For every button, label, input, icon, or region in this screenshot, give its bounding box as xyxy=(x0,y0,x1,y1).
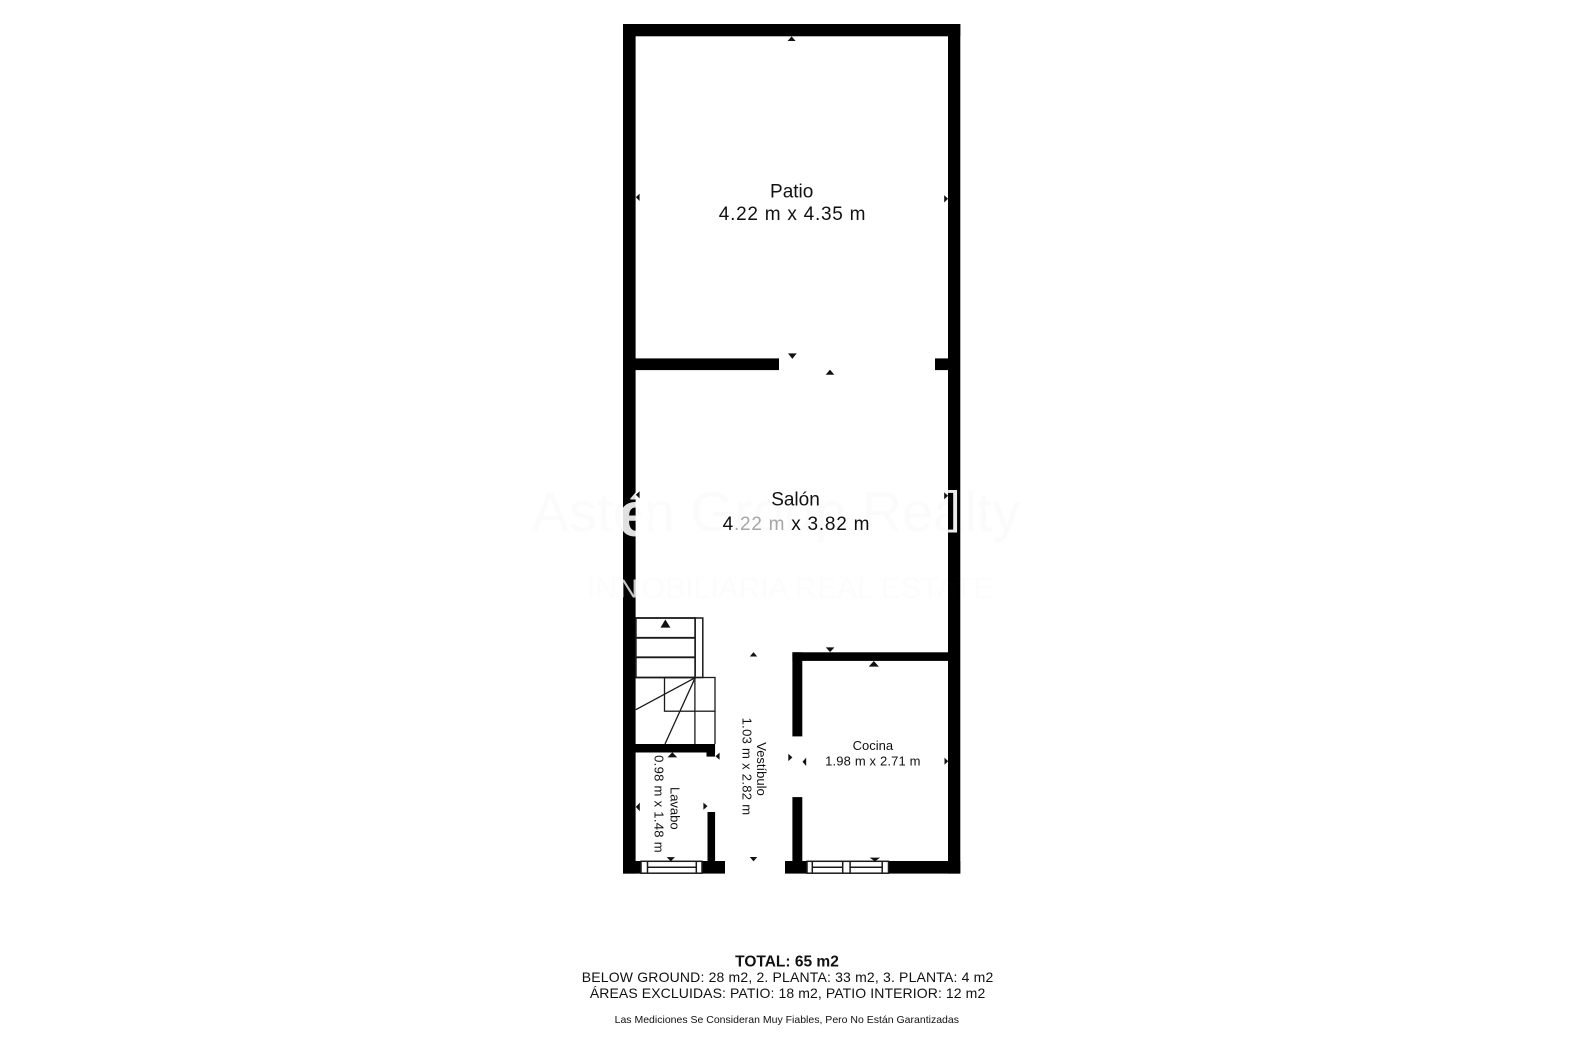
svg-text:Salón: Salón xyxy=(771,489,820,510)
svg-text:1.98 m x 2.71 m: 1.98 m x 2.71 m xyxy=(825,754,920,769)
svg-text:é: é xyxy=(617,480,652,550)
svg-text:Vestíbulo: Vestíbulo xyxy=(754,742,769,796)
svg-text:Lavabo: Lavabo xyxy=(667,787,682,830)
svg-text:0.98 m x 1.48 m: 0.98 m x 1.48 m xyxy=(652,755,667,853)
svg-text:4.22 m x 4.35 m: 4.22 m x 4.35 m xyxy=(719,204,866,225)
svg-text:BELOW GROUND: 28 m2, 2. PLANTA: BELOW GROUND: 28 m2, 2. PLANTA: 33 m2, 3… xyxy=(582,969,994,985)
svg-text:]: ] xyxy=(948,482,961,533)
svg-text:INMOBILIARIA REAL ESTATE: INMOBILIARIA REAL ESTATE xyxy=(587,572,993,605)
svg-text:1.03 m x 2.82 m: 1.03 m x 2.82 m xyxy=(740,718,755,816)
svg-text:Cocina: Cocina xyxy=(853,738,894,753)
svg-text:Las Mediciones Se Consideran M: Las Mediciones Se Consideran Muy Fiables… xyxy=(615,1014,959,1026)
svg-text:ÁREAS EXCLUIDAS: PATIO: 18 m2,: ÁREAS EXCLUIDAS: PATIO: 18 m2, PATIO INT… xyxy=(590,985,986,1001)
svg-text:4.22 m x 3.82 m: 4.22 m x 3.82 m xyxy=(723,514,871,535)
svg-text:N: N xyxy=(619,574,638,604)
svg-text:TOTAL: 65 m2: TOTAL: 65 m2 xyxy=(735,953,839,970)
svg-text:Patio: Patio xyxy=(770,181,813,202)
